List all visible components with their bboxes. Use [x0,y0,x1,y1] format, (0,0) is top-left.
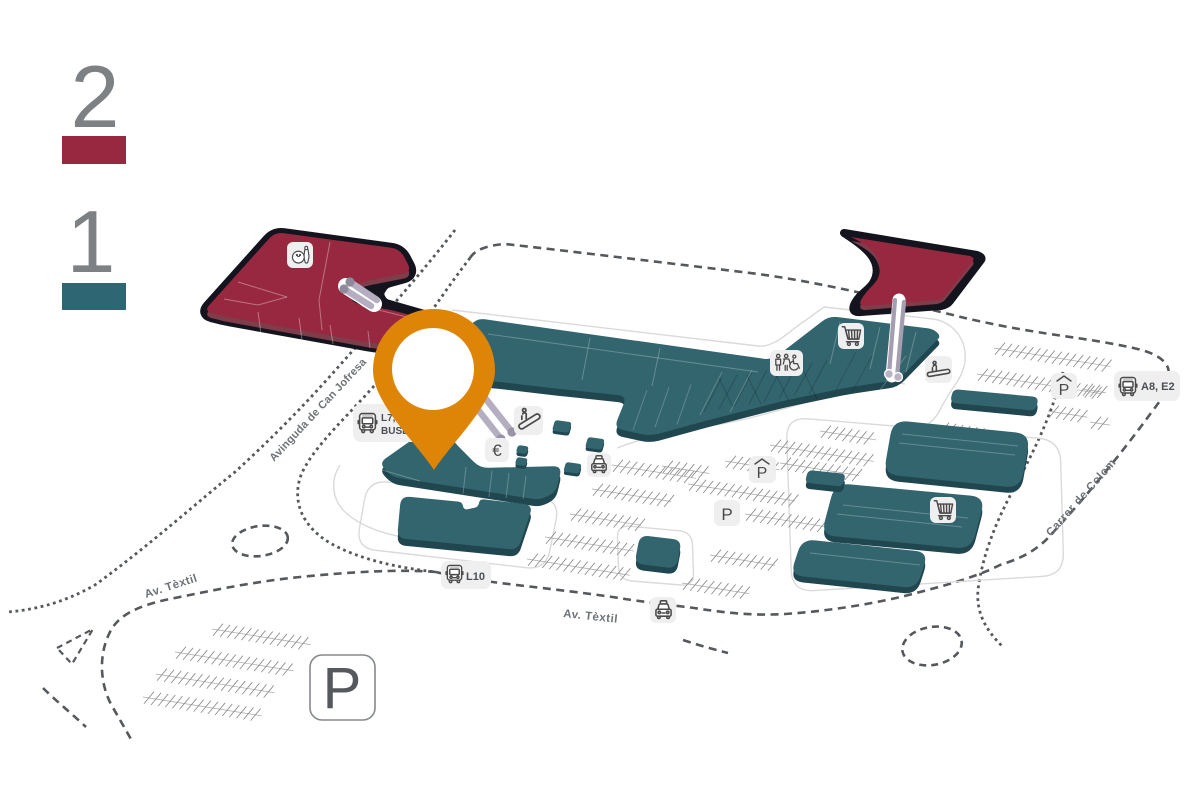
svg-text:P: P [323,656,362,721]
svg-text:€: € [492,441,502,460]
svg-text:P: P [1059,382,1070,399]
svg-text:1: 1 [67,192,116,291]
svg-text:2: 2 [71,47,120,146]
svg-text:P: P [721,505,732,524]
svg-text:P: P [757,465,768,482]
svg-text:A8, E2: A8, E2 [1141,381,1175,393]
svg-text:L10: L10 [466,571,485,583]
